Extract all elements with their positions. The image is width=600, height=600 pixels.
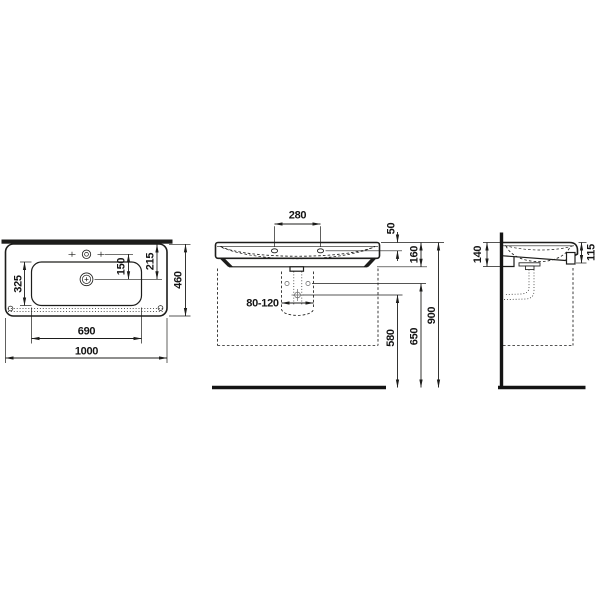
deck-hidden-contour — [505, 246, 574, 251]
apron-left-wedge — [220, 258, 234, 267]
dim-label-front-edge-height: 115 — [585, 244, 597, 261]
drain-flange-neck — [526, 266, 535, 270]
apron-right-wedge — [364, 258, 377, 267]
basin-front-slab — [216, 243, 380, 259]
drain-outlet-tab — [290, 267, 304, 271]
dim-label-rim-height: 900 — [426, 307, 438, 325]
dim-label-basin-width: 690 — [78, 326, 96, 338]
cabinet-hidden-outline — [218, 269, 379, 346]
drain-flange — [519, 263, 540, 266]
dim-label-fixing-height: 650 — [408, 328, 420, 346]
dim-label-overall-width: 1000 — [75, 346, 98, 358]
concealed-drain-pipe — [504, 270, 529, 295]
dim-label-tap-to-drain: 150 — [115, 258, 127, 276]
dim-label-body-height: 160 — [408, 246, 420, 264]
dim-label-basin-depth: 325 — [12, 275, 24, 293]
deck-tap-hole — [317, 249, 323, 253]
washbasin-technical-drawing: 325 150 215 460 690 1000 — [0, 0, 600, 600]
front-view: 280 50 160 80-120 580 650 900 — [212, 210, 444, 388]
basin-underside — [503, 256, 566, 261]
side-view: 140 115 — [472, 233, 598, 390]
bowl-hidden-contour — [506, 246, 570, 262]
fixing-hole — [306, 281, 310, 285]
technical-drawing-page: 325 150 215 460 690 1000 — [0, 0, 600, 600]
corner-hole — [158, 306, 163, 311]
dim-label-tap-spacing: 280 — [289, 210, 307, 222]
wall-edge-bar — [2, 240, 173, 244]
dim-label-drain-height: 580 — [385, 329, 397, 347]
deck-tap-hole — [271, 249, 277, 253]
fixing-hole — [285, 281, 289, 285]
front-view-dimensions: 280 50 160 80-120 580 650 900 — [246, 210, 444, 388]
bowl-hidden-contour — [221, 247, 376, 257]
top-view: 325 150 215 460 690 1000 — [2, 240, 191, 364]
dim-label-overall-depth: 460 — [172, 271, 184, 289]
dim-label-rim-to-tap: 50 — [385, 223, 397, 235]
dim-label-trap-range: 80-120 — [246, 298, 279, 310]
drain-hole — [80, 273, 93, 286]
wall-mount-ledge — [503, 256, 514, 266]
concealed-drain-pipe — [504, 270, 534, 300]
cabinet-hidden-outline-side — [503, 268, 573, 346]
drain-center-crosshair — [292, 289, 304, 301]
overflow-box — [567, 253, 576, 265]
tap-hole — [69, 250, 105, 258]
dim-label-edge-to-drain: 215 — [144, 253, 156, 271]
basin-apron — [222, 258, 375, 267]
dim-label-depth-at-wall: 140 — [472, 246, 484, 264]
